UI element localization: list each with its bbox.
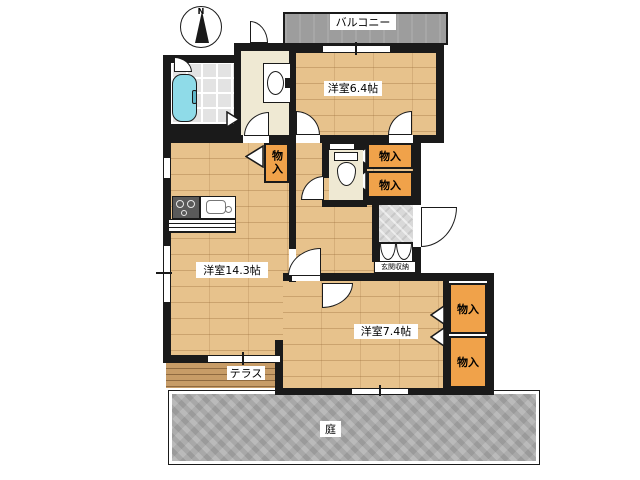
washbasin-bowl	[267, 71, 284, 95]
folding-door-icon	[430, 305, 445, 325]
closet-hall-vertical: 物入	[264, 143, 289, 183]
wall-segment	[322, 200, 367, 207]
wall-segment	[234, 43, 296, 51]
closet-7-4-lower: 物入	[449, 336, 487, 388]
folding-door-triangle	[246, 146, 263, 167]
entrance-storage-label: 玄関収納	[374, 261, 416, 273]
window-tick	[379, 385, 381, 396]
room-14-3-window	[208, 355, 280, 363]
folding-door-triangle	[431, 306, 444, 324]
sink-faucet	[225, 206, 232, 213]
room-6-4-label: 洋室6.4帖	[324, 81, 382, 96]
window-tick	[242, 352, 244, 365]
door-arc-washroom-top	[250, 21, 268, 43]
door-opening	[296, 135, 320, 143]
folding-door-triangle	[227, 112, 239, 127]
kitchen-sink	[200, 196, 236, 219]
folding-door-icon	[430, 327, 445, 347]
wall-segment	[367, 197, 421, 205]
wall-segment	[163, 55, 171, 363]
sink-basin	[206, 200, 226, 214]
terrace-label: テラス	[227, 366, 265, 380]
washbasin-faucet	[285, 78, 290, 88]
garden-area	[168, 390, 540, 465]
wall-segment	[436, 45, 444, 143]
balcony-label: バルコニー	[330, 14, 396, 30]
kitchen-stove	[172, 196, 200, 219]
door-opening	[243, 135, 269, 143]
folding-door-triangle	[431, 328, 444, 346]
entrance-floor	[379, 205, 413, 242]
wall-segment	[413, 143, 421, 205]
room-14-3-label: 洋室14.3帖	[196, 262, 268, 278]
wall-segment	[289, 143, 296, 249]
stove-burner	[187, 200, 195, 208]
compass-needle	[195, 11, 209, 43]
left-window-small	[163, 158, 171, 178]
closet-7-4-upper: 物入	[449, 283, 487, 334]
window-tick	[156, 272, 172, 274]
entrance-door-arc	[421, 207, 457, 247]
toilet-tank	[334, 152, 358, 161]
door-opening	[389, 135, 413, 143]
compass-needle-icon	[181, 7, 223, 49]
washbasin	[263, 63, 291, 103]
folding-door-icon	[226, 111, 240, 128]
garden-label: 庭	[320, 421, 341, 437]
bathtub-handle	[192, 90, 197, 104]
kitchen-counter	[168, 219, 236, 233]
stove-burner	[176, 200, 184, 208]
closet-hall-lower: 物入	[367, 171, 413, 198]
wall-segment	[322, 143, 329, 178]
stove-burner	[181, 210, 187, 216]
wall-segment	[372, 205, 379, 262]
wall-segment	[487, 273, 494, 395]
compass: N	[180, 6, 222, 48]
floor-plan: 玄関収納 物入 物入 物入 物入 物入	[0, 0, 640, 480]
folding-door-icon	[245, 145, 264, 168]
closet-hall-upper: 物入	[367, 143, 413, 169]
garden-surface	[172, 394, 536, 461]
left-window-large	[163, 246, 171, 302]
room-7-4-label: 洋室7.4帖	[354, 324, 418, 339]
window-tick	[355, 42, 357, 55]
door-arc-room-14-3	[288, 248, 321, 276]
toilet-window	[330, 143, 354, 150]
wall-segment	[275, 340, 283, 395]
